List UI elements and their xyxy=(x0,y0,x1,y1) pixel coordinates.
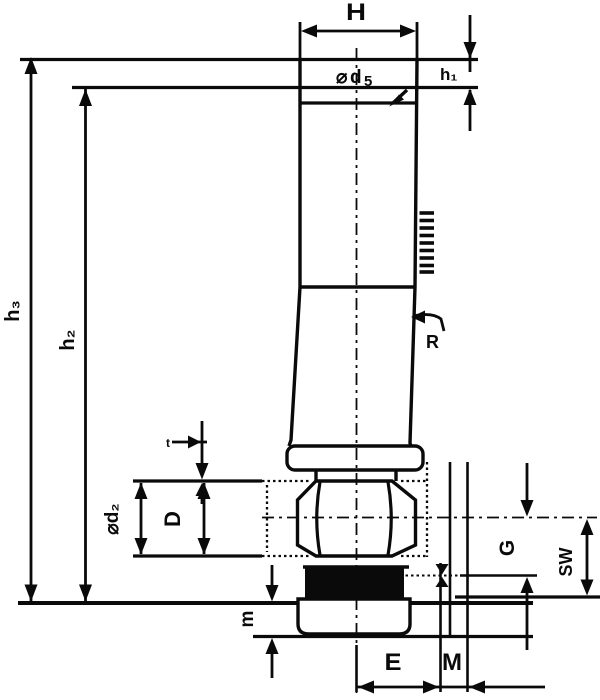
svg-text:h₂: h₂ xyxy=(57,329,79,350)
svg-text:M: M xyxy=(442,649,462,676)
svg-text:SW: SW xyxy=(556,547,576,576)
svg-text:h₃: h₃ xyxy=(2,300,24,321)
svg-text:⌀d₂: ⌀d₂ xyxy=(102,503,123,535)
svg-text:⌀d5: ⌀d5 xyxy=(336,67,375,90)
svg-text:E: E xyxy=(385,649,402,676)
svg-text:m: m xyxy=(237,611,258,628)
svg-text:D: D xyxy=(160,511,185,527)
svg-text:t: t xyxy=(166,436,170,450)
svg-text:h₁: h₁ xyxy=(440,65,457,84)
svg-text:R: R xyxy=(426,332,439,352)
svg-text:G: G xyxy=(496,540,519,556)
svg-text:H: H xyxy=(346,0,366,26)
